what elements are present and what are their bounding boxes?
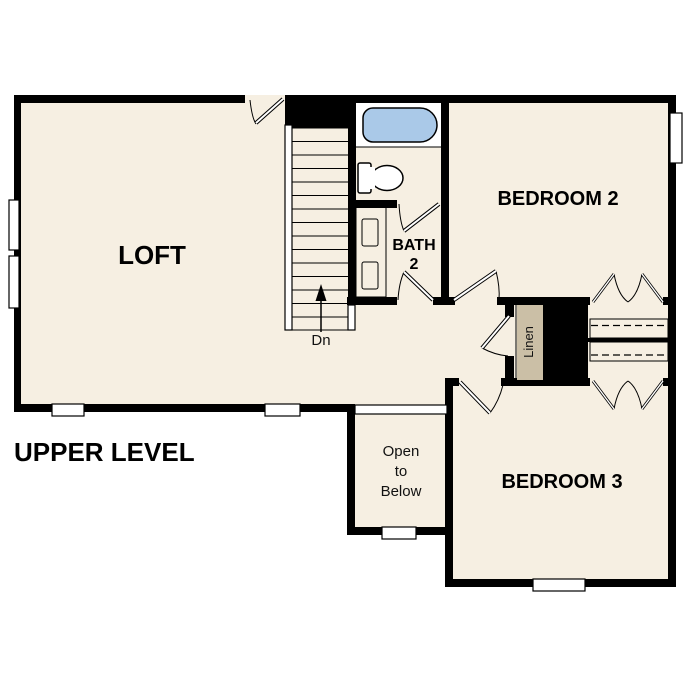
bedroom3-label: BEDROOM 3 — [501, 471, 622, 493]
window — [52, 404, 84, 416]
open-to-below-label-line3: Below — [381, 483, 422, 500]
stair-stringer-right — [348, 305, 355, 330]
window — [9, 256, 19, 308]
stairs-down-label: Dn — [311, 332, 330, 349]
toilet-icon — [358, 163, 403, 193]
plan-title: UPPER LEVEL — [14, 437, 195, 467]
window — [382, 527, 416, 539]
bathtub-icon — [363, 108, 437, 142]
window — [533, 579, 585, 591]
loft-label: LOFT — [118, 240, 186, 270]
bedroom2-label: BEDROOM 2 — [497, 188, 618, 210]
floor-plan: LOFT BATH 2 BEDROOM 2 BEDROOM 3 Linen Dn… — [0, 0, 687, 687]
window — [670, 113, 682, 163]
open-to-below-label-line2: to — [395, 463, 408, 480]
bath-label-line2: 2 — [410, 256, 419, 273]
window — [9, 200, 19, 250]
railing-open-to-below — [355, 405, 447, 414]
open-to-below-label-line1: Open — [383, 443, 420, 460]
linen-label: Linen — [521, 326, 536, 358]
stair-stringer-left — [285, 125, 292, 330]
window — [265, 404, 300, 416]
bath-label-line1: BATH — [392, 237, 435, 254]
